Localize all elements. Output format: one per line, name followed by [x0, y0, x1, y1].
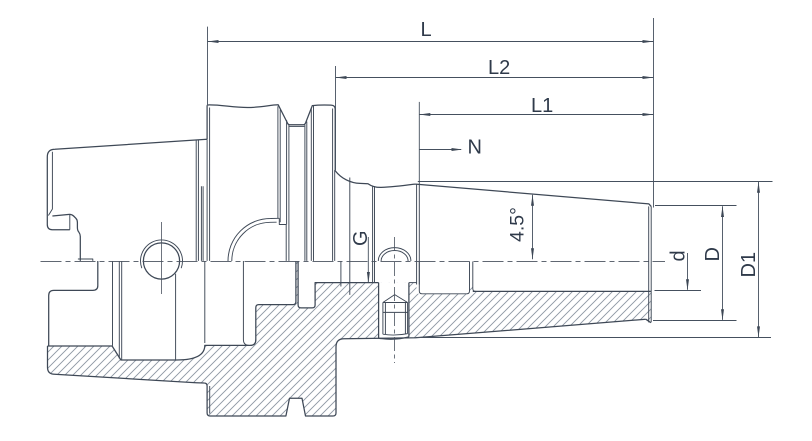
- svg-text:L2: L2: [488, 57, 510, 79]
- svg-text:D1: D1: [738, 252, 760, 278]
- svg-text:L: L: [421, 19, 432, 41]
- svg-text:G: G: [350, 230, 372, 246]
- svg-text:4.5°: 4.5°: [507, 207, 529, 242]
- svg-text:d: d: [668, 250, 690, 261]
- svg-text:L1: L1: [531, 95, 553, 117]
- svg-text:D: D: [702, 247, 724, 261]
- svg-text:N: N: [468, 136, 482, 158]
